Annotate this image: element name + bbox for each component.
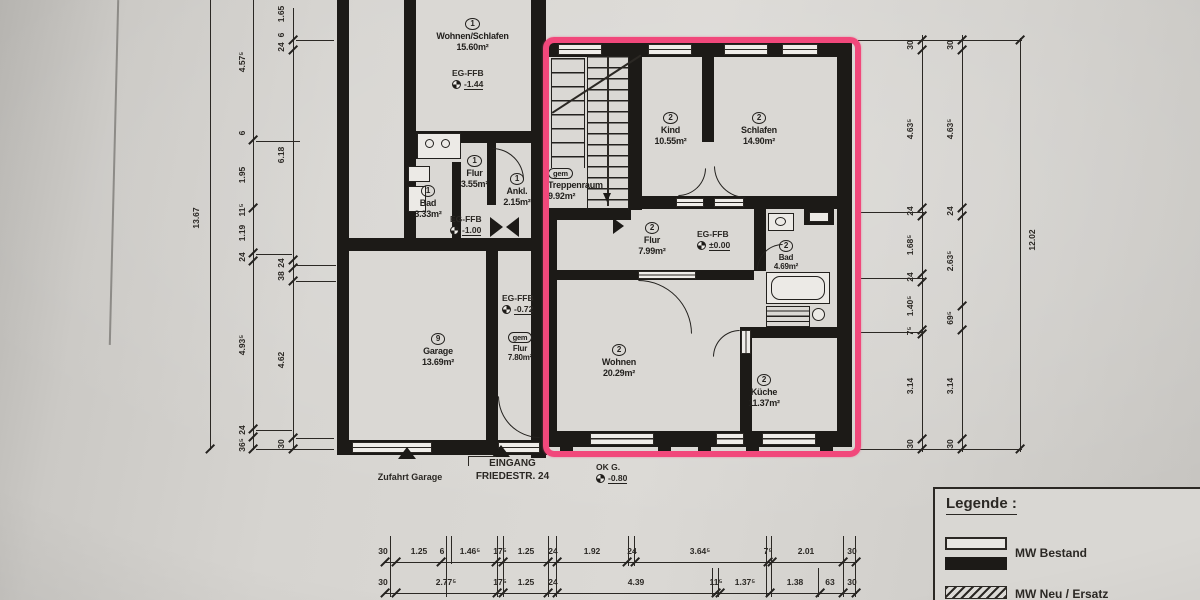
level-marker-eg144: EG-FFB -1.44 [452,68,484,89]
dim-ext [712,568,713,597]
room-name: Garage [403,346,473,357]
dim-line [385,593,857,594]
dim-label: 1.37⁵ [735,577,756,587]
dim-label: 6 [237,131,247,136]
dim-ext [451,536,452,564]
legend-swatch-black [945,557,1007,570]
room-label-bad1: 1 Bad 3.33m² [406,185,450,219]
dim-label: 24 [276,42,286,51]
dim-label: 2.63⁵ [945,251,955,272]
dim-label: 4.62 [276,352,286,369]
room-name: Flur [452,168,497,179]
door-marker-icon [490,217,503,237]
dim-line [1020,38,1021,452]
dim-label: 12.02 [1027,229,1037,250]
room-number: 9 [431,333,445,345]
dim-label: 13.67 [191,207,201,228]
dim-label: 4.57⁵ [237,52,247,73]
dim-ext [497,536,498,597]
dim-ext [256,430,292,431]
dim-label: 1.68⁵ [905,235,915,256]
level-marker-eg072: EG-FFB -0.72 [502,293,534,314]
level-label: OK G. [596,462,620,472]
level-icon [452,80,461,89]
dim-label: 24 [276,258,286,267]
eingang-label: EINGANG FRIEDESTR. 24 [455,458,570,483]
dim-label: 17⁵ [493,546,506,556]
dim-label: 38 [276,271,286,280]
dim-ext [858,278,924,279]
stove-burner [425,139,434,148]
sheet-edge [109,0,119,345]
dim-label: 24 [905,272,915,281]
room-number: 1 [467,155,481,167]
dim-ext [718,568,719,597]
stove-burner [441,139,450,148]
dim-label: 1.38 [787,577,804,587]
room-number: 1 [510,173,524,185]
dim-label: 30 [378,577,387,587]
dim-label: 6 [276,33,286,38]
dim-label: 30 [276,439,286,448]
level-icon [596,474,605,483]
level-icon [450,226,459,235]
dim-label: 4.63⁵ [945,119,955,140]
dim-label: 24 [945,206,955,215]
room-area: 15.60m² [415,42,530,53]
wall [337,0,349,455]
level-value: -1.00 [462,225,481,236]
room-label-ankl: 1 Ankl. 2.15m² [493,173,541,207]
garage-door [352,442,432,453]
level-label: EG-FFB [452,68,484,78]
legend-title: Legende : [946,495,1017,515]
dim-ext [548,536,549,597]
dim-label: 3.14 [905,378,915,395]
dim-ext [256,141,300,142]
dim-label: 17⁵ [493,577,506,587]
dim-label: 1.25 [518,546,535,556]
dim-ext [256,254,292,255]
legend-box: Legende : MW Bestand MW Neu / Ersatz [933,487,1200,600]
dim-label: 36⁵ [237,438,247,451]
level-marker-okg: OK G. -0.80 [596,462,627,483]
room-label-flur1: 1 Flur 3.55m² [452,155,497,189]
entrance-arrow-icon [398,447,416,459]
dim-label: 1.19 [237,225,247,242]
dim-label: 24 [905,206,915,215]
dim-line [253,0,254,450]
dim-label: 4.39 [628,577,645,587]
dim-line [962,35,963,452]
level-marker-eg100: EG-FFB -1.00 [450,214,482,235]
legend-label-neu: MW Neu / Ersatz [1015,587,1108,600]
dim-label: 30 [378,546,387,556]
level-value: -0.72 [514,304,533,315]
dim-label: 2.01 [798,546,815,556]
dim-label: 1.65 [276,6,286,23]
kitchen-corner [404,131,418,159]
dim-label: 1.25 [518,577,535,587]
dim-ext [818,568,819,597]
dim-ext [503,536,504,597]
legend-swatch-hatched [945,586,1007,599]
legend-label-bestand: MW Bestand [1015,546,1087,560]
dim-ext [256,449,334,450]
legend-swatch-white [945,537,1007,550]
dim-ext [446,536,447,597]
dim-ext [766,536,767,597]
dim-label: 1.46⁵ [460,546,481,556]
room-area: 2.15m² [493,197,541,208]
room-area: 3.33m² [406,209,450,220]
dim-label: 3.64⁵ [690,546,711,556]
dim-line [293,8,294,450]
dim-label: 6.18 [276,147,286,164]
dim-label: 7⁵ [905,327,915,336]
dim-ext [556,536,557,597]
dim-ext [855,536,856,597]
door-marker-icon [506,217,519,237]
room-name: Bad [406,198,450,209]
dim-label: 1.95 [237,167,247,184]
room-name: Wohnen/Schlafen [415,31,530,42]
level-icon [502,305,511,314]
zufahrt-garage-label: Zufahrt Garage [360,472,460,483]
dim-line [210,0,211,450]
dim-label: 24 [237,425,247,434]
room-number: gem [508,332,533,343]
room-area: 13.69m² [403,357,473,368]
room-number: 1 [465,18,479,30]
dim-ext [843,536,844,597]
dim-ext [771,536,772,597]
dim-line [385,562,857,563]
dim-ext [296,40,334,41]
level-value: -0.80 [608,473,627,484]
dim-label: 30 [945,439,955,448]
dim-label: 30 [905,40,915,49]
dim-label: 1.25 [411,546,428,556]
dim-label: 24 [237,252,247,261]
room-label-garage: 9 Garage 13.69m² [403,333,473,367]
room-label-flur-gem: gem Flur 7.80m² [498,332,542,363]
dim-label: 1.40⁵ [905,296,915,317]
room-area: 7.80m² [498,353,542,362]
room-name: Flur [498,344,542,353]
dim-ext [628,536,629,566]
wall [486,238,498,455]
dim-ext [634,536,635,566]
wall [349,238,546,251]
room-name: Ankl. [493,186,541,197]
dim-ext [858,449,1022,450]
highlight-rectangle [543,37,861,457]
dim-ext [296,281,336,282]
floor-plan-photo: 1 Wohnen/Schlafen 15.60m² 1 Flur 3.55m² … [0,0,1200,600]
room-area: 3.55m² [452,179,497,190]
dim-label: 4.93⁵ [237,335,247,356]
level-label: EG-FFB [450,214,482,224]
dim-label: 11⁵ [237,204,247,217]
dim-label: 69⁵ [945,311,955,324]
dim-label: 63 [825,577,834,587]
dim-label: 6 [440,546,445,556]
level-value: -1.44 [464,79,483,90]
dim-ext [390,536,391,597]
dim-ext [858,332,924,333]
dim-ext [858,212,924,213]
eingang-line1: EINGANG [455,458,570,471]
room-number: 1 [421,185,435,197]
dim-label: 30 [905,439,915,448]
washbasin [408,166,430,182]
dim-ext [296,265,336,266]
dim-line [922,35,923,452]
dim-label: 1.92 [584,546,601,556]
room-label-wohnen-schlafen: 1 Wohnen/Schlafen 15.60m² [415,18,530,52]
dim-ext [296,438,334,439]
level-label: EG-FFB [502,293,534,303]
dim-label: 30 [945,40,955,49]
dim-ext [858,40,1022,41]
eingang-line2: FRIEDESTR. 24 [455,471,570,484]
dim-label: 3.14 [945,378,955,395]
dim-label: 4.63⁵ [905,119,915,140]
